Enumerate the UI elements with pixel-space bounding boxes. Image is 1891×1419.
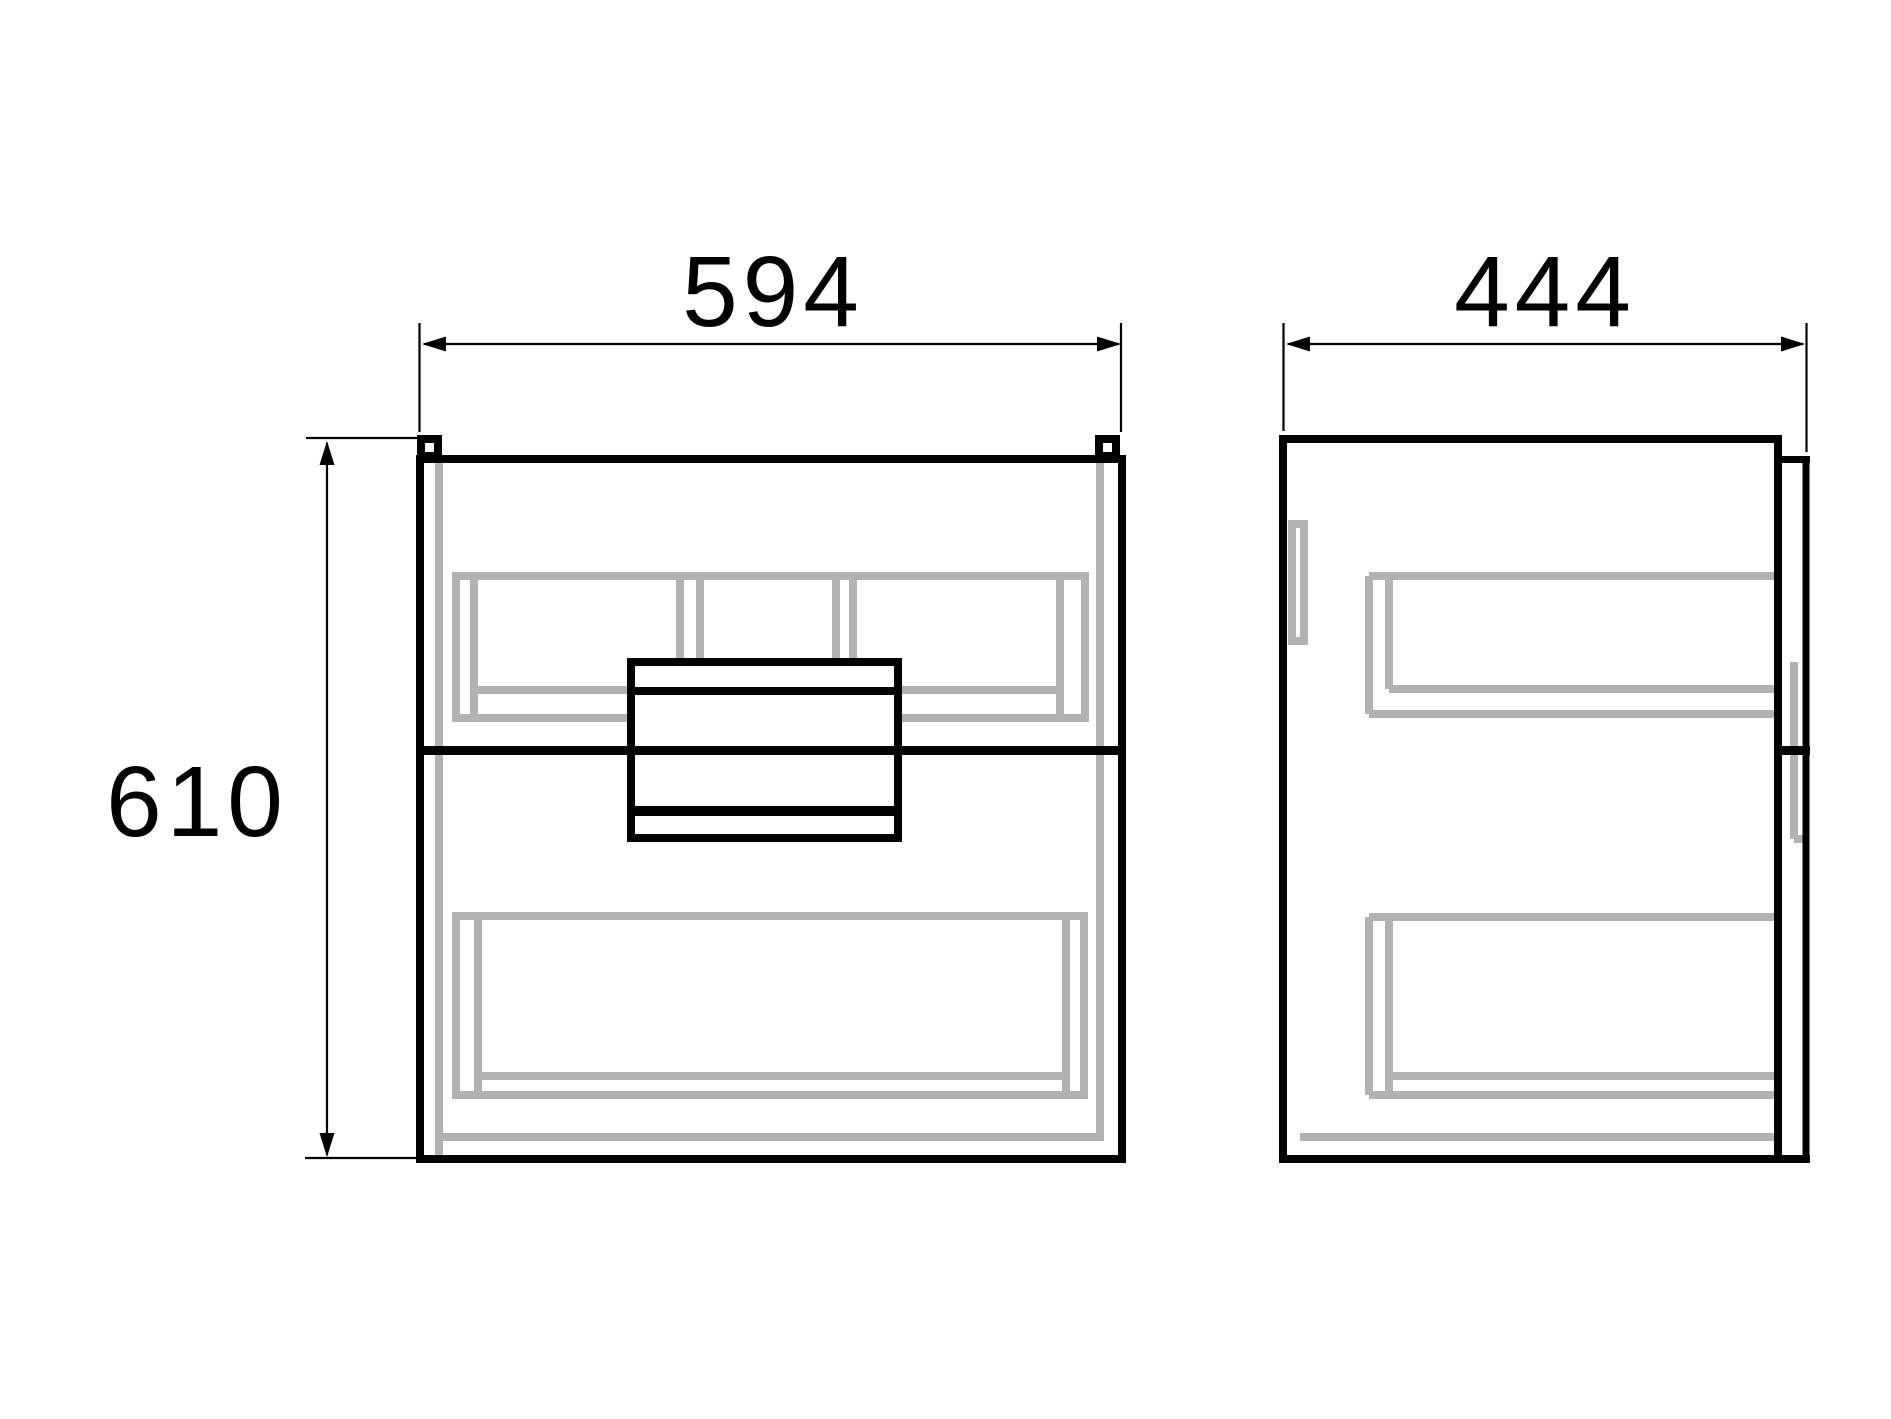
mounting-tab-right xyxy=(1099,439,1116,456)
dimension-width: 594 xyxy=(420,236,1122,432)
lower-drawer-hidden-box xyxy=(456,916,1084,1095)
arrowhead-bottom xyxy=(320,1133,335,1157)
side-view xyxy=(1283,439,1810,1163)
width-dimension-label: 594 xyxy=(682,236,864,348)
dimension-height-lines xyxy=(305,438,421,1158)
depth-dimension-label: 444 xyxy=(1454,236,1636,348)
arrowhead-left xyxy=(1286,337,1310,352)
arrowhead-left xyxy=(422,337,446,352)
front-view-outline xyxy=(416,439,1126,1159)
dimension-depth: 444 xyxy=(1284,236,1807,452)
dimension-height: 610 xyxy=(106,438,421,1158)
drawing-canvas: 594 444 610 xyxy=(0,0,1891,1419)
arrowhead-right xyxy=(1781,337,1805,352)
front-view xyxy=(416,439,1126,1159)
cabinet-side-outline xyxy=(1283,439,1778,1159)
side-view-outline xyxy=(1283,439,1810,1163)
wall-bracket-hidden xyxy=(1292,524,1304,641)
arrowhead-top xyxy=(320,441,335,465)
side-view-hidden-lines xyxy=(1292,524,1806,1137)
mounting-tab-left xyxy=(421,439,438,456)
height-dimension-label: 610 xyxy=(106,746,288,858)
technical-drawing: 594 444 610 xyxy=(0,0,1891,1419)
arrowhead-right xyxy=(1097,337,1121,352)
